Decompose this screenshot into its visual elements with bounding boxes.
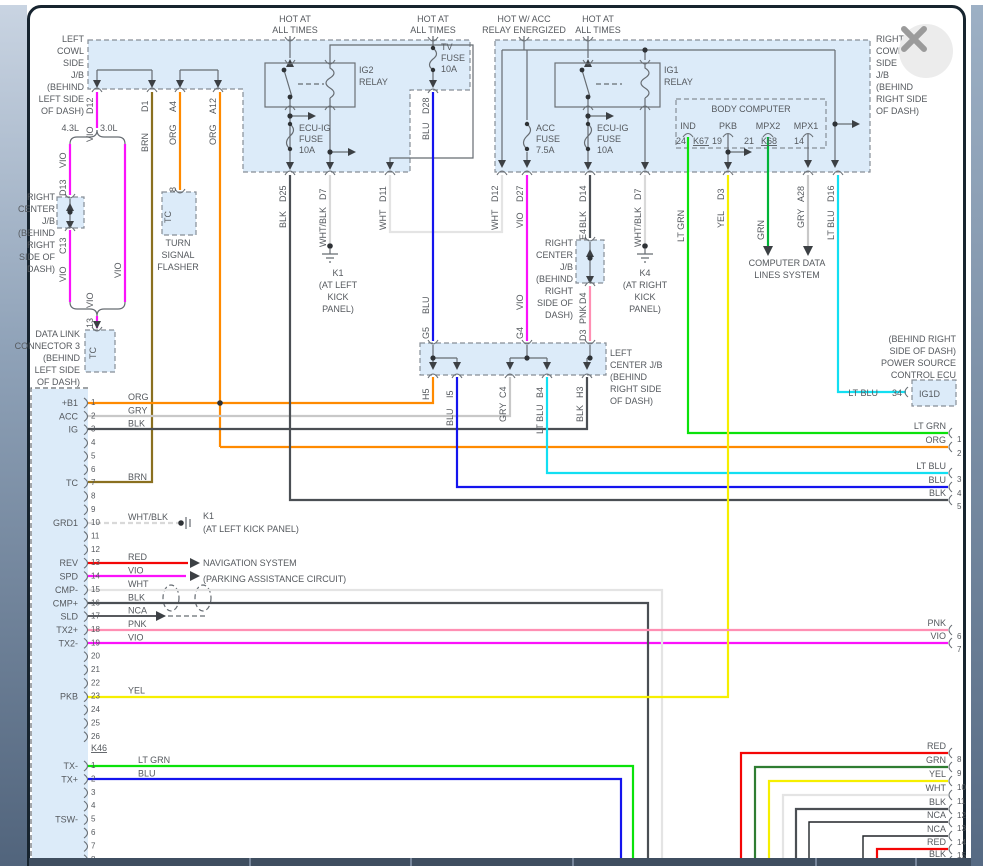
edge-wire-color-label: RED <box>927 837 947 847</box>
toolbar-separator <box>815 858 817 866</box>
wire-tag: VIO <box>85 292 95 308</box>
wire-tag: A4 <box>168 101 178 112</box>
terminal-tag: TC <box>163 211 173 223</box>
ecu-pin-name: ACC <box>59 411 79 421</box>
ecu-pin-name: SLD <box>60 612 78 622</box>
ecu-pin-number: 7 <box>91 841 96 850</box>
wire-tag: VIO <box>515 212 525 228</box>
wire-color-label: WHT/BLK <box>128 512 168 522</box>
grd1-ground-symbol <box>186 517 190 529</box>
engine-variant-b: 3.0L <box>100 123 118 133</box>
ecu-pin-number: 6 <box>91 828 96 837</box>
edge-pin-connector <box>949 776 952 786</box>
wire-tag: C13 <box>58 237 68 254</box>
ecu-pin-name: SPD <box>59 572 78 582</box>
wire-lt-blu <box>547 175 948 473</box>
wire-tag: D13 <box>58 179 68 196</box>
edge-pin-connector <box>949 482 952 492</box>
edge-pin-connector <box>949 468 952 478</box>
body-computer-connector: K67 <box>693 136 709 146</box>
bottom-toolbar <box>29 858 971 866</box>
edge-pin-number: 2 <box>957 449 962 458</box>
grd1-ground-label: K1(AT LEFT KICK PANEL) <box>203 511 299 534</box>
ecu-pin-number: 4 <box>91 801 96 810</box>
toolbar-separator <box>410 858 412 866</box>
ecu-pin-number: 14 <box>91 572 100 581</box>
wire-tag: G4 <box>515 327 525 339</box>
wire-tag: BRN <box>140 133 150 152</box>
wire-color-label: PNK <box>128 619 147 629</box>
ecu-pin-number: 4 <box>91 438 96 447</box>
wire-color-label: VIO <box>128 632 144 642</box>
wire-color-label: YEL <box>128 686 145 696</box>
wire-color-label: LT GRN <box>138 755 170 765</box>
wire-tag: VIO <box>58 266 68 282</box>
right-center-jb2-label: RIGHTCENTERJ/B(BEHINDRIGHTSIDE OFDASH) <box>536 238 574 320</box>
wire-tag: A28 <box>796 186 806 202</box>
edge-wire-color-label: YEL <box>929 769 946 779</box>
edge-pin-number: 8 <box>957 755 962 764</box>
ecu-pin-number: 25 <box>91 718 100 727</box>
ecu-pin-number: 1 <box>91 761 96 770</box>
wire-tag: D1 <box>140 100 150 112</box>
wire-tag: GRN <box>756 220 766 240</box>
ecu-pin-name: TC <box>66 478 78 488</box>
wire-tag: ORG <box>168 124 178 145</box>
edge-pin-number: 13 <box>957 824 966 833</box>
edge-pin-connector <box>949 625 952 635</box>
wire-tag: BLK <box>278 211 288 228</box>
wire-tag: BLK <box>575 405 585 422</box>
edge-wire-color-label: BLK <box>929 488 946 498</box>
wire-tag: D27 <box>515 185 525 202</box>
ecu-pin-number: 17 <box>91 612 100 621</box>
wire-tag: C4 <box>498 386 508 398</box>
wire-color-label: RED <box>128 552 148 562</box>
wire-tag: BLU <box>421 296 431 314</box>
ecu-pin-name: CMP+ <box>53 598 78 608</box>
edge-pin-number: 12 <box>957 811 966 820</box>
ecu-pin-number: 21 <box>91 665 100 674</box>
ecu-pin-number: 3 <box>91 425 96 434</box>
body-computer-pin: MPX1 <box>794 121 819 131</box>
right-center-jb1-label: RIGHTCENTERJ/B(BEHINDRIGHTSIDE OFDASH) <box>18 192 56 274</box>
wire-tag: D14 <box>578 185 588 202</box>
wire-color-label: VIO <box>128 566 144 576</box>
ecu-pin-name: GRD1 <box>53 518 78 528</box>
wire-tag: VIO <box>113 262 123 278</box>
ecu-pin-number: 24 <box>91 705 100 714</box>
engine-variant-a: 4.3L <box>61 123 79 133</box>
ecu-pin-number: 12 <box>91 545 100 554</box>
navigation-system-label: NAVIGATION SYSTEM <box>203 558 297 568</box>
computer-data-lines-label: COMPUTER DATALINES SYSTEM <box>749 258 826 280</box>
wire-tag: D12 <box>490 185 500 202</box>
edge-pin-number: 5 <box>957 502 962 511</box>
ecu-pin-name: PKB <box>60 692 78 702</box>
edge-pin-number: 11 <box>957 797 966 806</box>
edge-pin-number: 10 <box>957 783 966 792</box>
edge-pin-number: 14 <box>957 838 966 847</box>
ecu-pin-name: TSW- <box>55 815 78 825</box>
edge-wire-color-label: LT GRN <box>914 421 946 431</box>
edge-pin-connector <box>949 804 952 814</box>
edge-wire-color-label: WHT <box>926 783 947 793</box>
body-computer-title: BODY COMPUTER <box>711 104 791 114</box>
body-computer-pin: IND <box>680 121 696 131</box>
wire-color-label: ORG <box>128 392 149 402</box>
wire-tag: A12 <box>208 98 218 114</box>
wires <box>70 92 948 861</box>
edge-wire-color-label: NCA <box>927 824 946 834</box>
ecu-pin-number: 18 <box>91 625 100 634</box>
wire-tag: WHT <box>378 209 388 230</box>
edge-pin-connector <box>949 817 952 827</box>
edge-wire-color-label: BLU <box>928 475 946 485</box>
body-computer-pin: MPX2 <box>756 121 781 131</box>
hot-feed-label: HOT ATALL TIMES <box>575 14 621 35</box>
wire-tag: ORG <box>208 124 218 145</box>
wire-tag: I5 <box>445 390 455 398</box>
hot-feed-label: HOT W/ ACCRELAY ENERGIZED <box>482 14 566 35</box>
edge-pin-connector <box>949 495 952 505</box>
wire-tag: YEL <box>716 211 726 228</box>
hot-feed-label: HOT ATALL TIMES <box>410 14 456 35</box>
body-computer-pin-num: 19 <box>712 136 722 146</box>
edge-pin-connector <box>949 831 952 841</box>
wire-tag: WHT <box>490 209 500 230</box>
edge-pin-connector <box>949 844 952 854</box>
junction-box-shapes <box>31 40 956 866</box>
ecu-pin-number: 26 <box>91 732 100 741</box>
wire-tag: 8 <box>168 187 178 192</box>
wire-color-label: NCA <box>128 606 147 616</box>
edge-pin-connector <box>949 442 952 452</box>
wire-color-label: BLU <box>138 768 156 778</box>
ecu-pin-name: CMP- <box>55 585 78 595</box>
edge-wire-color-label: PNK <box>927 618 946 628</box>
wire-tag: D25 <box>278 185 288 202</box>
toolbar-separator <box>249 858 251 866</box>
ecu-pin-number: 11 <box>91 532 100 541</box>
left-cowl-jb-label: LEFTCOWLSIDEJ/B(BEHINDLEFT SIDEOF DASH) <box>39 34 85 116</box>
wire-tag: BLK <box>578 211 588 228</box>
wire-tag: VIO <box>58 152 68 168</box>
ecu-pin-number: 9 <box>91 505 96 514</box>
ecu-pin-number: 1 <box>91 398 96 407</box>
wire-tag: D28 <box>421 97 431 114</box>
wire-tag: WHT/BLK <box>318 207 328 247</box>
wire-blu <box>88 92 948 858</box>
edge-wire-color-label: ORG <box>925 435 946 445</box>
ecu-pin-number: 5 <box>91 451 96 460</box>
edge-pin-connector <box>949 762 952 772</box>
ecu-pin-number: 2 <box>91 411 96 420</box>
ecu-pin-number: 16 <box>91 598 100 607</box>
ecu-pin-name: TX2+ <box>56 625 78 635</box>
ecu-pin-number: 7 <box>91 478 96 487</box>
wire-tag: D3 <box>716 188 726 200</box>
ecu-pin-number: 15 <box>91 585 100 594</box>
ecu-pin-name: +B1 <box>62 398 78 408</box>
wire-tag: VIO <box>515 294 525 310</box>
wire-red <box>88 563 948 858</box>
wire-tag: BLU <box>421 122 431 140</box>
wire-tag: LT BLU <box>535 404 545 434</box>
close-button[interactable] <box>899 24 953 78</box>
edge-pin-number: 3 <box>957 475 962 484</box>
ig1d-terminal: IG1D <box>919 389 941 399</box>
ecu-pin-number: 23 <box>91 692 100 701</box>
wire-tag: D16 <box>826 185 836 202</box>
edge-pin-number: 7 <box>957 645 962 654</box>
ig1d-wire-label: LT BLU <box>848 388 878 398</box>
ecu-pin-name: TX+ <box>61 774 78 784</box>
wire-tag: D11 <box>378 186 388 202</box>
wire-color-label: BRN <box>128 472 147 482</box>
wire-tag: E4 <box>578 229 588 240</box>
k4-ground-symbol <box>637 249 653 262</box>
ecu-pin-name: IG <box>68 425 78 435</box>
wire-tag: D3 <box>578 329 588 341</box>
edge-wire-color-label: RED <box>927 741 947 751</box>
power-source-ecu-label: (BEHIND RIGHTSIDE OF DASH)POWER SOURCECO… <box>881 334 957 380</box>
edge-wire-color-label: NCA <box>927 810 946 820</box>
ecu-pin-name: TX2- <box>58 638 78 648</box>
body-computer-pin-num: 21 <box>744 136 754 146</box>
wire-color-label: WHT <box>128 579 149 589</box>
ecu-pin-number: 5 <box>91 815 96 824</box>
left-center-jb-box <box>420 343 606 375</box>
wire-tag: WHT/BLK <box>633 207 643 247</box>
edge-pin-number: 6 <box>957 632 962 641</box>
parking-assistance-label: (PARKING ASSISTANCE CIRCUIT) <box>203 574 346 584</box>
toolbar-separator <box>572 858 574 866</box>
ig1d-pin-num: 34 <box>892 388 902 398</box>
edge-pin-connector <box>949 638 952 648</box>
data-link-connector-label: DATA LINKCONNECTOR 3(BEHINDLEFT SIDEOF D… <box>15 329 81 387</box>
wire-tag: D4 <box>578 292 588 304</box>
wire-tag: H3 <box>575 386 585 398</box>
wire-color-label: BLK <box>128 592 145 602</box>
ecu-pin-number: 2 <box>91 774 96 783</box>
k1-ground-label: K1(AT LEFTKICKPANEL) <box>319 268 358 314</box>
edge-pin-number: 9 <box>957 769 962 778</box>
wire-tag: H5 <box>421 388 431 400</box>
body-computer-pin-num: 24 <box>676 136 686 146</box>
turn-signal-flasher-label: TURNSIGNALFLASHER <box>157 238 199 272</box>
wiring-diagram: HOT ATALL TIMES HOT ATALL TIMES HOT W/ A… <box>0 0 983 866</box>
edge-pin-connector <box>949 748 952 758</box>
wiring-diagram-viewer: HOT ATALL TIMES HOT ATALL TIMES HOT W/ A… <box>0 0 983 866</box>
left-center-jb-label: LEFTCENTER J/B(BEHINDRIGHT SIDEOF DASH) <box>610 348 663 406</box>
wire-tag: D7 <box>318 188 328 200</box>
body-computer-connector: K68 <box>761 136 777 146</box>
wire-tag: D7 <box>633 188 643 200</box>
ecu-connector-name: K46 <box>91 743 107 753</box>
wire-tag: B4 <box>535 387 545 398</box>
edge-pin-connector <box>949 790 952 800</box>
ecu-pin-number: 13 <box>91 558 100 567</box>
edge-wire-color-label: GRN <box>926 755 946 765</box>
wire-tag: BLU <box>445 408 455 426</box>
edge-pin-connector <box>949 428 952 438</box>
wire-nca <box>88 616 948 858</box>
ecu-pin-name: REV <box>59 558 78 568</box>
ecu-pin-number: 3 <box>91 788 96 797</box>
ecu-pin-number: 10 <box>91 518 100 527</box>
wire-tag: 13 <box>85 318 95 328</box>
wire-tag: GRY <box>796 209 806 228</box>
wire-lt-grn <box>88 137 948 858</box>
ecu-pin-name: TX- <box>64 761 79 771</box>
ecu-pin-number: 22 <box>91 678 100 687</box>
wire-color-label: GRY <box>128 405 147 415</box>
edge-wire-color-label: BLK <box>929 797 946 807</box>
ecu-pin-number: 20 <box>91 652 100 661</box>
wire-tag: D12 <box>85 97 95 114</box>
wire-color-label: BLK <box>128 419 145 429</box>
terminal-tag: TC <box>88 347 98 359</box>
edge-wire-color-label: LT BLU <box>916 461 946 471</box>
edge-wire-color-label: VIO <box>930 631 946 641</box>
k4-ground-label: K4(AT RIGHTKICKPANEL) <box>623 268 668 314</box>
wire-tag: LT BLU <box>826 210 836 240</box>
ecu-pin-number: 8 <box>91 491 96 500</box>
edge-pin-number: 1 <box>957 435 962 444</box>
wire-tag: VIO <box>85 126 95 142</box>
ecu-pin-number: 6 <box>91 465 96 474</box>
k1-ground-symbol <box>322 249 338 262</box>
wire-tag: LT GRN <box>676 210 686 242</box>
edge-pin-number: 4 <box>957 489 962 498</box>
close-icon <box>899 24 929 54</box>
hot-feed-label: HOT ATALL TIMES <box>272 14 318 35</box>
wire-tag: G5 <box>421 327 431 339</box>
body-computer-pin-num: 14 <box>794 136 804 146</box>
body-computer-pin: PKB <box>719 121 737 131</box>
ecu-pin-number: 19 <box>91 638 100 647</box>
wire-tag: GRY <box>498 403 508 422</box>
wire-tag: PNK <box>578 305 588 324</box>
toolbar-separator <box>915 858 917 866</box>
